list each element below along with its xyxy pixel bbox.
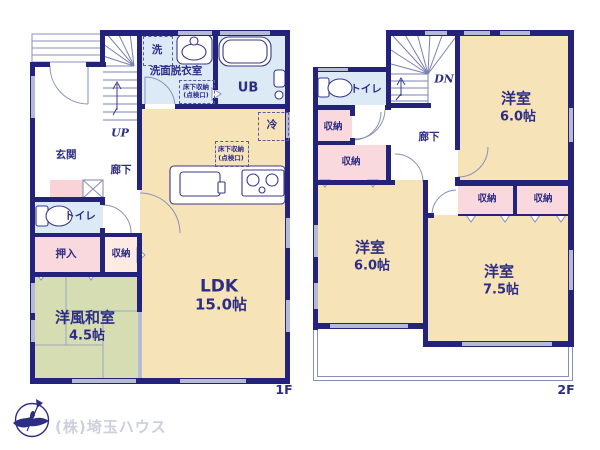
wall (30, 197, 105, 202)
label-washroom: 洗面脱衣室 (150, 66, 203, 77)
window (286, 300, 290, 332)
window (220, 31, 270, 35)
sliding-door-washitsu-ldk (138, 312, 142, 378)
window (569, 250, 573, 290)
label-underfloor-1: 床下収納 (218, 146, 244, 153)
wall (458, 214, 570, 216)
wall (86, 62, 106, 67)
wall (313, 141, 355, 145)
wall (137, 107, 142, 190)
door-gap (355, 105, 385, 110)
label-stairs-down: DN (434, 74, 454, 85)
door-arc-toilet-1f (103, 205, 131, 233)
wall (30, 272, 142, 277)
label-room-ne-name: 洋室 (501, 92, 531, 107)
label-floor-1f: 1F (275, 384, 292, 397)
wall (137, 233, 142, 277)
label-underfloor-2: (点検口) (183, 92, 208, 99)
window (31, 320, 35, 342)
door-arc-room-se-2f (432, 190, 456, 215)
label-ldk-name: LDK (200, 279, 238, 296)
label-room-sw-name: 洋室 (355, 241, 385, 256)
label-washer: 洗 (152, 45, 163, 56)
label-floor-2f: 2F (557, 384, 574, 397)
wall (350, 110, 355, 116)
window (286, 218, 290, 248)
window (425, 31, 447, 35)
wall (100, 197, 105, 205)
shoe-cabinet-1f (50, 180, 83, 198)
room-ldk-1f (140, 107, 285, 378)
window (72, 379, 136, 383)
company-name: (株)埼玉ハウス (55, 416, 167, 437)
label-storage-a-2f: 収納 (323, 122, 342, 132)
label-toilet-2f: トイレ (350, 84, 382, 95)
window (569, 108, 573, 142)
wall (313, 180, 395, 185)
genkan-crossed-box (83, 180, 103, 198)
stairs-2f (391, 33, 455, 107)
window (31, 76, 35, 118)
wall (100, 30, 105, 66)
wall (386, 145, 391, 180)
wall (30, 233, 142, 237)
label-entrance: 玄関 (56, 150, 77, 161)
entrance-porch-steps (32, 34, 102, 62)
label-storage-d-2f: 収納 (533, 194, 552, 204)
label-room-se-name: 洋室 (484, 265, 514, 280)
label-room-sw-size: 6.0帖 (354, 260, 390, 273)
label-hallway-2f: 廊下 (419, 132, 440, 143)
label-unit-bath: UB (238, 82, 258, 95)
door-arc-room-sw-2f (395, 154, 423, 182)
floor-plan-canvas: 玄関 廊下 UP 洗 洗面脱衣室 床下収納 (点検口) UB 冷 床下収納 (点… (0, 0, 600, 450)
label-oshiire: 押入 (56, 249, 77, 260)
window (314, 283, 318, 309)
stairs-1f (103, 33, 137, 120)
window (31, 283, 35, 313)
room-unit-bath-1f (215, 33, 285, 107)
window (500, 31, 530, 35)
label-washitsu-name: 洋風和室 (55, 311, 115, 326)
label-fridge: 冷 (267, 120, 278, 131)
window (464, 31, 490, 35)
wall (423, 180, 428, 347)
label-storage-1f: 収納 (111, 249, 130, 259)
label-underfloor-1: 床下収納 (183, 84, 209, 91)
label-toilet-1f: トイレ (64, 211, 96, 222)
label-ldk-size: 15.0帖 (195, 298, 247, 313)
door-arc-storage-a-2f (353, 112, 381, 140)
wall (428, 213, 434, 218)
wall (137, 272, 142, 312)
wall (388, 103, 431, 108)
window (178, 31, 212, 35)
label-room-ne-size: 6.0帖 (500, 111, 536, 124)
label-room-se-size: 7.5帖 (483, 284, 519, 297)
window (462, 342, 552, 346)
wall (30, 378, 290, 384)
wall (137, 30, 142, 107)
door-arc-front-door (50, 66, 88, 104)
company-logo-compass-bird-icon (13, 399, 49, 437)
label-storage-c-2f: 収納 (477, 194, 496, 204)
door-gap (145, 104, 175, 109)
window (314, 225, 318, 257)
door-arc-toilet-2f (355, 109, 385, 139)
window (318, 68, 348, 71)
label-stairs-up: UP (111, 128, 129, 139)
wall (455, 30, 460, 150)
wall (513, 183, 517, 215)
label-hallway-1f: 廊下 (111, 165, 132, 176)
window (180, 379, 246, 383)
wall (100, 233, 105, 273)
window (330, 324, 408, 328)
label-storage-b-2f: 収納 (341, 157, 360, 167)
label-underfloor-2: (点検口) (218, 155, 243, 162)
label-washitsu-size: 4.5帖 (69, 330, 105, 343)
wall (568, 30, 574, 347)
